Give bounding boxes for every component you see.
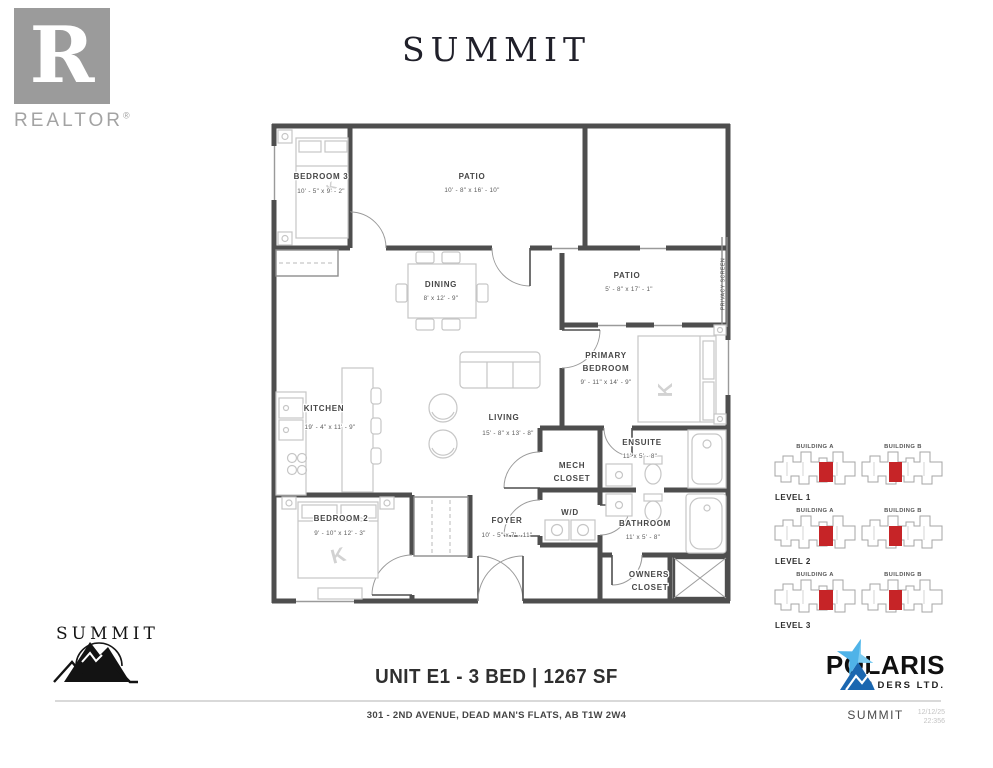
- dining-table: [396, 252, 488, 330]
- room-dims-foyer: 10' - 5" x 7' - 11": [482, 532, 533, 539]
- building-a-label: BUILDING A: [796, 572, 834, 578]
- sheet-number: 22:356: [918, 717, 945, 726]
- room-label-kitchen: KITCHEN: [304, 404, 344, 413]
- highlighted-unit: [819, 462, 833, 482]
- furniture: K: [276, 130, 726, 599]
- room-dims-patio-top: 10' - 8" x 16' - 10": [444, 187, 499, 194]
- room-dims-primary: 9' - 11" x 14' - 9": [581, 379, 632, 386]
- sheet-meta: 12/12/25 22:356: [918, 708, 945, 726]
- shower-icon: [674, 558, 726, 598]
- keyplan-building-a-l3: [775, 580, 855, 612]
- kitchen-counter: [276, 392, 307, 495]
- sheet-project: SUMMIT: [847, 708, 903, 722]
- room-label-owners-2: CLOSET: [632, 583, 669, 592]
- highlighted-unit: [889, 462, 902, 482]
- room-dims-kitchen: 19' - 4" x 11' - 9": [305, 424, 356, 431]
- room-label-bedroom3: BEDROOM 3: [294, 172, 349, 181]
- building-b-label: BUILDING B: [884, 444, 922, 450]
- sofa-icon: [429, 352, 540, 458]
- level-1-label: LEVEL 1: [775, 493, 811, 502]
- keyplan-building-a-l2: [775, 516, 855, 548]
- room-label-foyer: FOYER: [491, 516, 522, 525]
- sheet-info: SUMMIT 12/12/25 22:356: [847, 708, 945, 726]
- room-dims-bedroom2: 9' - 10" x 12' - 3": [314, 530, 365, 537]
- floor-plan-sheet: R REALTOR® SUMMIT: [0, 0, 993, 768]
- keyplan-building-b-l2: [862, 516, 942, 548]
- room-label-primary-2: BEDROOM: [583, 364, 630, 373]
- building-b-label: BUILDING B: [884, 572, 922, 578]
- room-label-dining: DINING: [425, 280, 457, 289]
- washer-dryer-icon: [545, 520, 595, 540]
- room-label-bathroom: BATHROOM: [619, 519, 671, 528]
- bed-mark: K: [655, 382, 677, 397]
- room-label-patio-side: PATIO: [614, 271, 641, 280]
- polaris-logo: POLARIS BUILDERS LTD.: [824, 638, 945, 691]
- key-plan: BUILDING A BUILDING B LEVEL 1 BUILDING A…: [775, 444, 942, 630]
- room-label-patio-top: PATIO: [459, 172, 486, 181]
- room-dims-ensuite: 11' x 5' - 8": [623, 453, 657, 460]
- building-a-label: BUILDING A: [796, 508, 834, 514]
- room-label-mech-1: MECH: [559, 461, 585, 470]
- keyplan-building-b-l3: [862, 580, 942, 612]
- room-label-bedroom2: BEDROOM 2: [314, 514, 369, 523]
- summit-brand-logo: SUMMIT: [50, 622, 160, 644]
- room-label-mech-2: CLOSET: [554, 474, 591, 483]
- highlighted-unit: [889, 526, 902, 546]
- room-label-ensuite: ENSUITE: [622, 438, 662, 447]
- floor-plan: PRIVACY SCREEN: [270, 124, 733, 606]
- highlighted-unit: [819, 590, 833, 610]
- property-address: 301 - 2ND AVENUE, DEAD MAN'S FLATS, AB T…: [0, 710, 993, 721]
- room-dims-dining: 8' x 12' - 9": [424, 295, 459, 302]
- polaris-star-mountain-icon: [824, 638, 888, 696]
- keyplan-building-a-l1: [775, 452, 855, 484]
- highlighted-unit: [889, 590, 902, 610]
- level-2-label: LEVEL 2: [775, 557, 811, 566]
- footer-divider: [55, 700, 941, 702]
- primary-bed-icon: K: [638, 325, 726, 424]
- sheet-date: 12/12/25: [918, 708, 945, 717]
- room-dims-patio-side: 5' - 8" x 17' - 1": [605, 286, 653, 293]
- keyplan-building-b-l1: [862, 452, 942, 484]
- privacy-screen-label: PRIVACY SCREEN: [721, 258, 727, 310]
- room-dims-bedroom3: 10' - 5" x 9' - 2": [297, 188, 345, 195]
- building-a-label: BUILDING A: [796, 444, 834, 450]
- level-3-label: LEVEL 3: [775, 621, 811, 630]
- room-dims-bathroom: 11' x 5' - 8": [626, 534, 660, 541]
- highlighted-unit: [819, 526, 833, 546]
- room-label-primary-1: PRIMARY: [585, 351, 627, 360]
- room-label-living: LIVING: [489, 413, 520, 422]
- bed2-icon: K: [282, 497, 394, 599]
- room-dims-living: 15' - 8" x 13' - 8": [482, 430, 533, 437]
- room-label-wd: W/D: [561, 508, 579, 517]
- room-label-owners-1: OWNERS: [629, 570, 669, 579]
- building-b-label: BUILDING B: [884, 508, 922, 514]
